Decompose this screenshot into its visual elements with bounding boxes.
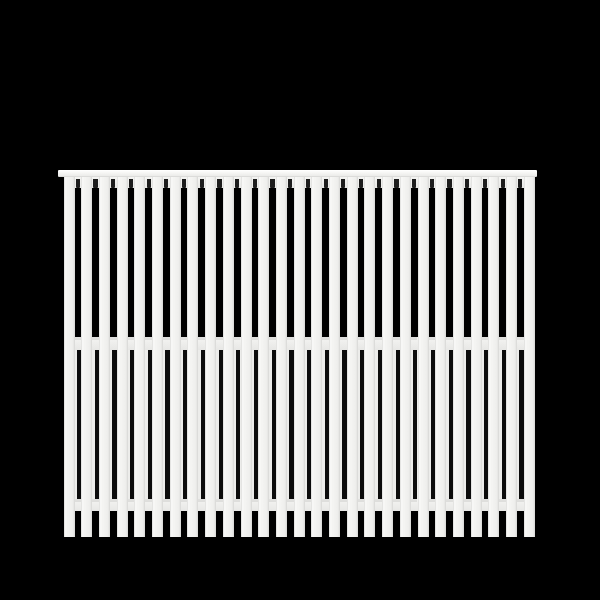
fence-slat [311,177,322,537]
middle-rail-shadow-tick [269,337,276,340]
bottom-rail-shadow-tick [411,499,418,502]
fence-slat [329,177,340,537]
middle-rail-shadow-tick [517,337,524,340]
top-rail-gap-notch [483,179,487,189]
middle-rail-shadow-tick [145,337,152,340]
fence-slat [364,177,375,537]
bottom-rail-shadow-tick [92,499,99,502]
fence-slat [524,177,535,537]
middle-rail-shadow-tick [287,337,294,340]
bottom-rail-shadow-tick [216,499,223,502]
top-rail-gap-notch [518,179,522,189]
fence-slat [99,177,110,537]
top-rail-gap-notch [341,179,345,189]
top-rail-gap-notch [324,179,328,189]
middle-rail-shadow-tick [375,337,382,340]
fence-slat [64,177,75,537]
middle-rail-shadow-tick [393,337,400,340]
bottom-rail-shadow-tick [375,499,382,502]
fence-slat [152,177,163,537]
bottom-rail-shadow-tick [163,499,170,502]
top-rail-gap-notch [430,179,434,189]
middle-rail-shadow-tick [198,337,205,340]
fence-top-cap-rail [58,170,537,177]
middle-rail-shadow-tick [92,337,99,340]
bottom-rail-shadow-tick [145,499,152,502]
top-rail-gap-notch [164,179,168,189]
bottom-rail-shadow-tick [482,499,489,502]
bottom-rail-shadow-tick [358,499,365,502]
fence-slat [506,177,517,537]
bottom-rail-shadow-tick [322,499,329,502]
fence-slat [382,177,393,537]
middle-rail-shadow-tick [499,337,506,340]
fence-slat [488,177,499,537]
bottom-rail-shadow-tick [446,499,453,502]
bottom-rail-shadow-tick [198,499,205,502]
middle-rail-shadow-tick [411,337,418,340]
top-rail-gap-notch [253,179,257,189]
top-rail-gap-notch [235,179,239,189]
fence-slat [223,177,234,537]
middle-rail-shadow-tick [482,337,489,340]
fence-panel [0,0,600,600]
fence-slat [258,177,269,537]
bottom-rail-shadow-tick [393,499,400,502]
middle-rail-shadow-tick [358,337,365,340]
fence-slat [400,177,411,537]
fence-slat [134,177,145,537]
bottom-rail-shadow-tick [429,499,436,502]
middle-rail-shadow-tick [464,337,471,340]
middle-rail-shadow-tick [110,337,117,340]
bottom-rail-shadow-tick [499,499,506,502]
top-rail-gap-notch [394,179,398,189]
top-rail-gap-notch [111,179,115,189]
top-rail-gap-notch [465,179,469,189]
bottom-rail-shadow-tick [269,499,276,502]
top-rail-gap-notch [76,179,80,189]
top-rail-gap-notch [129,179,133,189]
bottom-rail-shadow-tick [517,499,524,502]
fence-slat [117,177,128,537]
top-rail-gap-notch [182,179,186,189]
bottom-rail-shadow-tick [340,499,347,502]
bottom-rail-shadow-tick [464,499,471,502]
middle-rail-shadow-tick [252,337,259,340]
photo-background [0,0,600,600]
top-rail-gap-notch [447,179,451,189]
middle-rail-shadow-tick [446,337,453,340]
fence-slat [294,177,305,537]
top-rail-gap-notch [288,179,292,189]
middle-rail-shadow-tick [234,337,241,340]
bottom-rail-shadow-tick [181,499,188,502]
bottom-rail-shadow-tick [234,499,241,502]
middle-rail-shadow-tick [128,337,135,340]
fence-slat [453,177,464,537]
middle-rail-shadow-tick [340,337,347,340]
middle-rail-shadow-tick [322,337,329,340]
bottom-rail-shadow-tick [128,499,135,502]
bottom-rail-shadow-tick [75,499,82,502]
top-rail-gap-notch [412,179,416,189]
middle-rail-shadow-tick [163,337,170,340]
top-rail-gap-notch [217,179,221,189]
bottom-rail-shadow-tick [252,499,259,502]
middle-rail-shadow-tick [181,337,188,340]
fence-slat [418,177,429,537]
fence-slat [276,177,287,537]
top-rail-gap-notch [359,179,363,189]
top-rail-gap-notch [147,179,151,189]
top-rail-gap-notch [200,179,204,189]
fence-slat [241,177,252,537]
bottom-rail-shadow-tick [305,499,312,502]
fence-slat [435,177,446,537]
fence-slat [187,177,198,537]
middle-rail-shadow-tick [429,337,436,340]
middle-rail-shadow-tick [305,337,312,340]
fence-slat [205,177,216,537]
middle-rail-shadow-tick [75,337,82,340]
fence-slat [471,177,482,537]
fence-slat [170,177,181,537]
fence-slat [347,177,358,537]
fence-slat [81,177,92,537]
bottom-rail-shadow-tick [287,499,294,502]
top-rail-gap-notch [501,179,505,189]
top-rail-gap-notch [306,179,310,189]
bottom-rail-shadow-tick [110,499,117,502]
middle-rail-shadow-tick [216,337,223,340]
top-rail-gap-notch [93,179,97,189]
top-rail-gap-notch [270,179,274,189]
top-rail-gap-notch [377,179,381,189]
